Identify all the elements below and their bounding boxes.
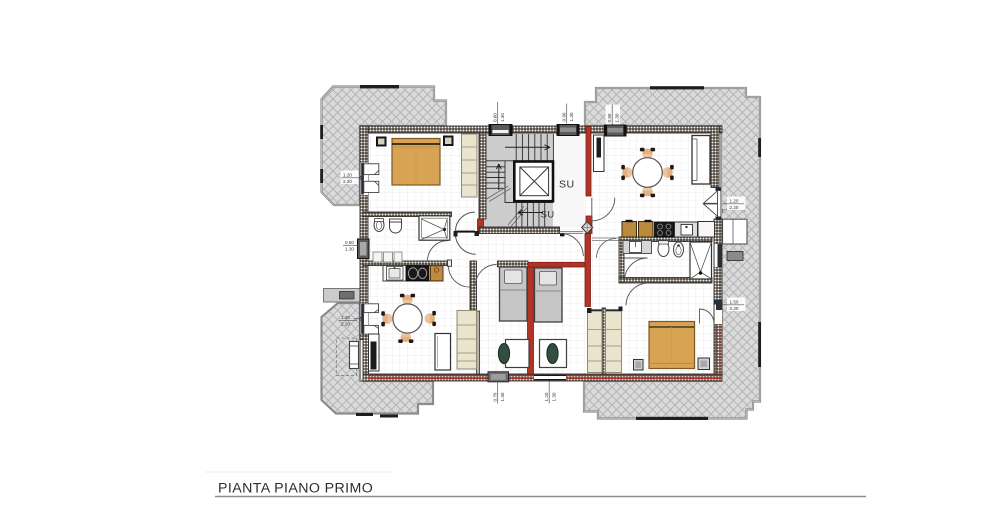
svg-text:0.60: 0.60 (493, 113, 498, 122)
svg-text:1.20: 1.20 (544, 392, 549, 401)
svg-text:0.60: 0.60 (345, 240, 354, 245)
svg-text:1.20: 1.20 (341, 315, 350, 320)
svg-text:1.30: 1.30 (345, 247, 354, 252)
svg-text:0.90: 0.90 (607, 113, 612, 122)
svg-text:1.30: 1.30 (551, 392, 556, 401)
svg-text:1.50: 1.50 (730, 300, 739, 305)
svg-text:SU: SU (541, 210, 555, 221)
svg-text:2.20: 2.20 (343, 179, 352, 184)
svg-text:2.20: 2.20 (341, 322, 350, 327)
svg-text:0.70: 0.70 (493, 392, 498, 401)
svg-text:1.20: 1.20 (730, 199, 739, 204)
svg-text:PIANTA PIANO PRIMO: PIANTA PIANO PRIMO (218, 481, 373, 497)
svg-text:1.30: 1.30 (500, 392, 505, 401)
svg-text:2.20: 2.20 (730, 306, 739, 311)
svg-text:SU: SU (559, 179, 575, 191)
svg-text:1.30: 1.30 (569, 112, 574, 121)
svg-text:2.20: 2.20 (730, 205, 739, 210)
svg-text:0.90: 0.90 (562, 112, 567, 121)
svg-text:1.20: 1.20 (343, 173, 352, 178)
svg-text:1.30: 1.30 (614, 113, 619, 122)
svg-text:1.30: 1.30 (500, 113, 505, 122)
